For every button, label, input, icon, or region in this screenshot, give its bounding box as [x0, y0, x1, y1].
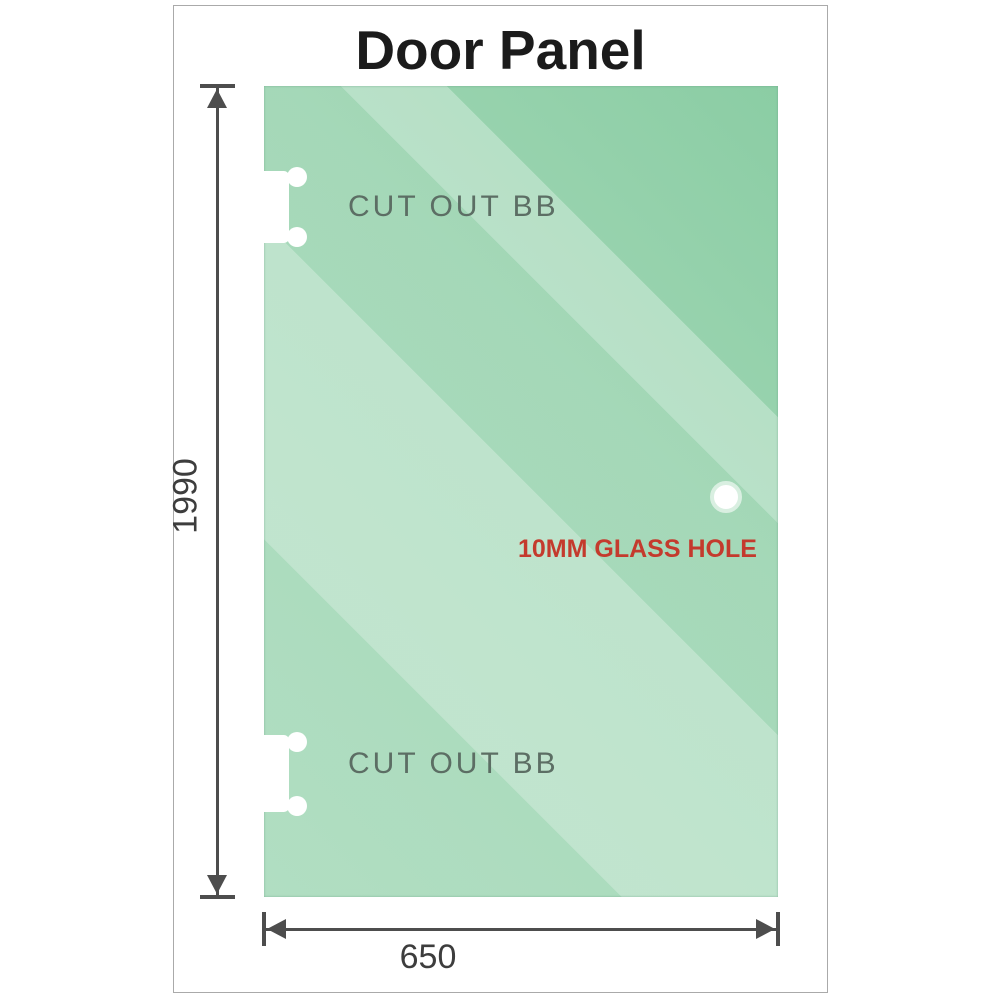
- hinge-cutout-top-lobe-lower: [287, 227, 307, 247]
- hinge-cutout-bottom: [250, 735, 289, 812]
- glass-panel: CUT OUT BB CUT OUT BB 10MM GLASS HOLE: [264, 86, 778, 897]
- width-dimension-tick-left: [262, 912, 266, 946]
- width-dimension-value: 650: [400, 938, 457, 977]
- width-dimension-tick-right: [776, 912, 780, 946]
- height-dimension-value: 1990: [167, 458, 206, 534]
- glass-hole-label: 10MM GLASS HOLE: [518, 535, 757, 564]
- hinge-cutout-bottom-lobe-lower: [287, 796, 307, 816]
- width-dimension-arrow-left-icon: [267, 919, 286, 939]
- hinge-cutout-bottom-lobe-upper: [287, 732, 307, 752]
- hinge-cutout-top-lobe-upper: [287, 167, 307, 187]
- width-dimension-arrow-right-icon: [756, 919, 775, 939]
- width-dimension-line: [264, 928, 778, 931]
- diagram-frame: Door Panel CUT OUT BB CUT OUT BB 10MM GL…: [173, 5, 828, 993]
- hinge-cutout-top: [250, 171, 289, 243]
- page-title: Door Panel: [174, 18, 827, 82]
- height-dimension-cap-top: [200, 84, 235, 88]
- cutout-label-top: CUT OUT BB: [348, 190, 559, 224]
- height-dimension-arrow-up-icon: [207, 89, 227, 108]
- glass-hole: [710, 481, 742, 513]
- height-dimension-line: [216, 86, 219, 897]
- height-dimension-arrow-down-icon: [207, 875, 227, 894]
- diagram-stage: Door Panel CUT OUT BB CUT OUT BB 10MM GL…: [0, 0, 1000, 1000]
- height-dimension-cap-bottom: [200, 895, 235, 899]
- cutout-label-bottom: CUT OUT BB: [348, 747, 559, 781]
